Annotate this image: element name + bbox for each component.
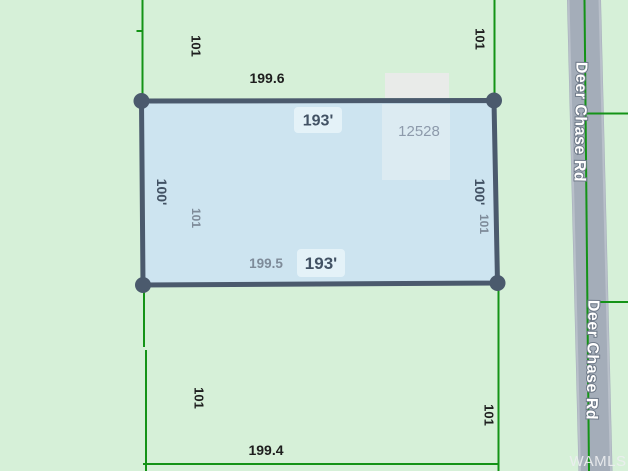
road-name-label-north: Deer Chase Rd [570, 62, 589, 183]
corner-marker-sw [135, 277, 151, 293]
plat-map-svg: 101 199.6 101 193' 12528 100' 101 100' 1… [0, 0, 628, 471]
dim-label-lot-depth-left: 100' [154, 179, 170, 206]
watermark: WAMLS [570, 453, 627, 470]
dim-label-block-ne: 101 [473, 28, 488, 50]
road-name-label-south: Deer Chase Rd [582, 300, 601, 421]
dim-label-lot-width-top: 193' [303, 113, 334, 130]
dim-label-lot-width-bottom: 193' [305, 254, 337, 273]
dim-label-block-se: 101 [482, 404, 497, 426]
dim-label-lot-depth-right: 100' [472, 179, 488, 206]
dim-label-outer-top: 199.6 [249, 70, 284, 86]
parcel-number-label: 12528 [398, 123, 440, 140]
dim-label-block-nw: 101 [189, 35, 204, 57]
dim-label-outer-bottom: 199.4 [248, 442, 283, 458]
dim-label-lot-side-left: 101 [189, 208, 203, 228]
building-footprint-lower [382, 104, 450, 180]
dim-label-lot-side-right: 101 [477, 214, 491, 234]
corner-marker-ne [486, 93, 502, 109]
corner-marker-se [490, 275, 506, 291]
corner-marker-nw [134, 93, 150, 109]
building-footprint-upper [385, 73, 449, 98]
plat-map-image[interactable]: 101 199.6 101 193' 12528 100' 101 100' 1… [0, 0, 628, 471]
dim-label-block-sw: 101 [192, 387, 207, 409]
dim-label-inner-bottom: 199.5 [249, 256, 283, 271]
